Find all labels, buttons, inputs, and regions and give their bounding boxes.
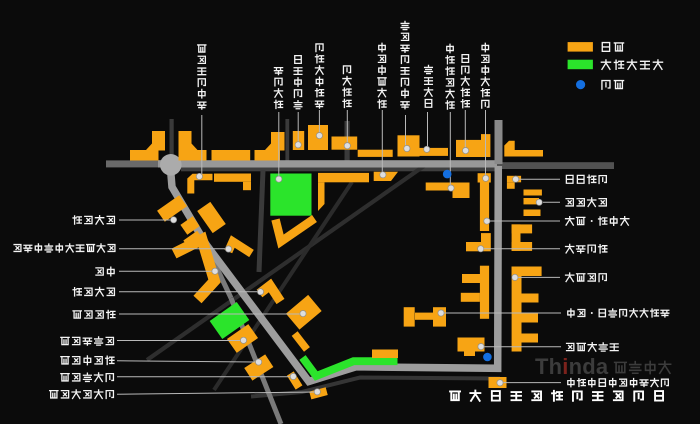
svg-text:Thinda: Thinda bbox=[535, 354, 609, 379]
